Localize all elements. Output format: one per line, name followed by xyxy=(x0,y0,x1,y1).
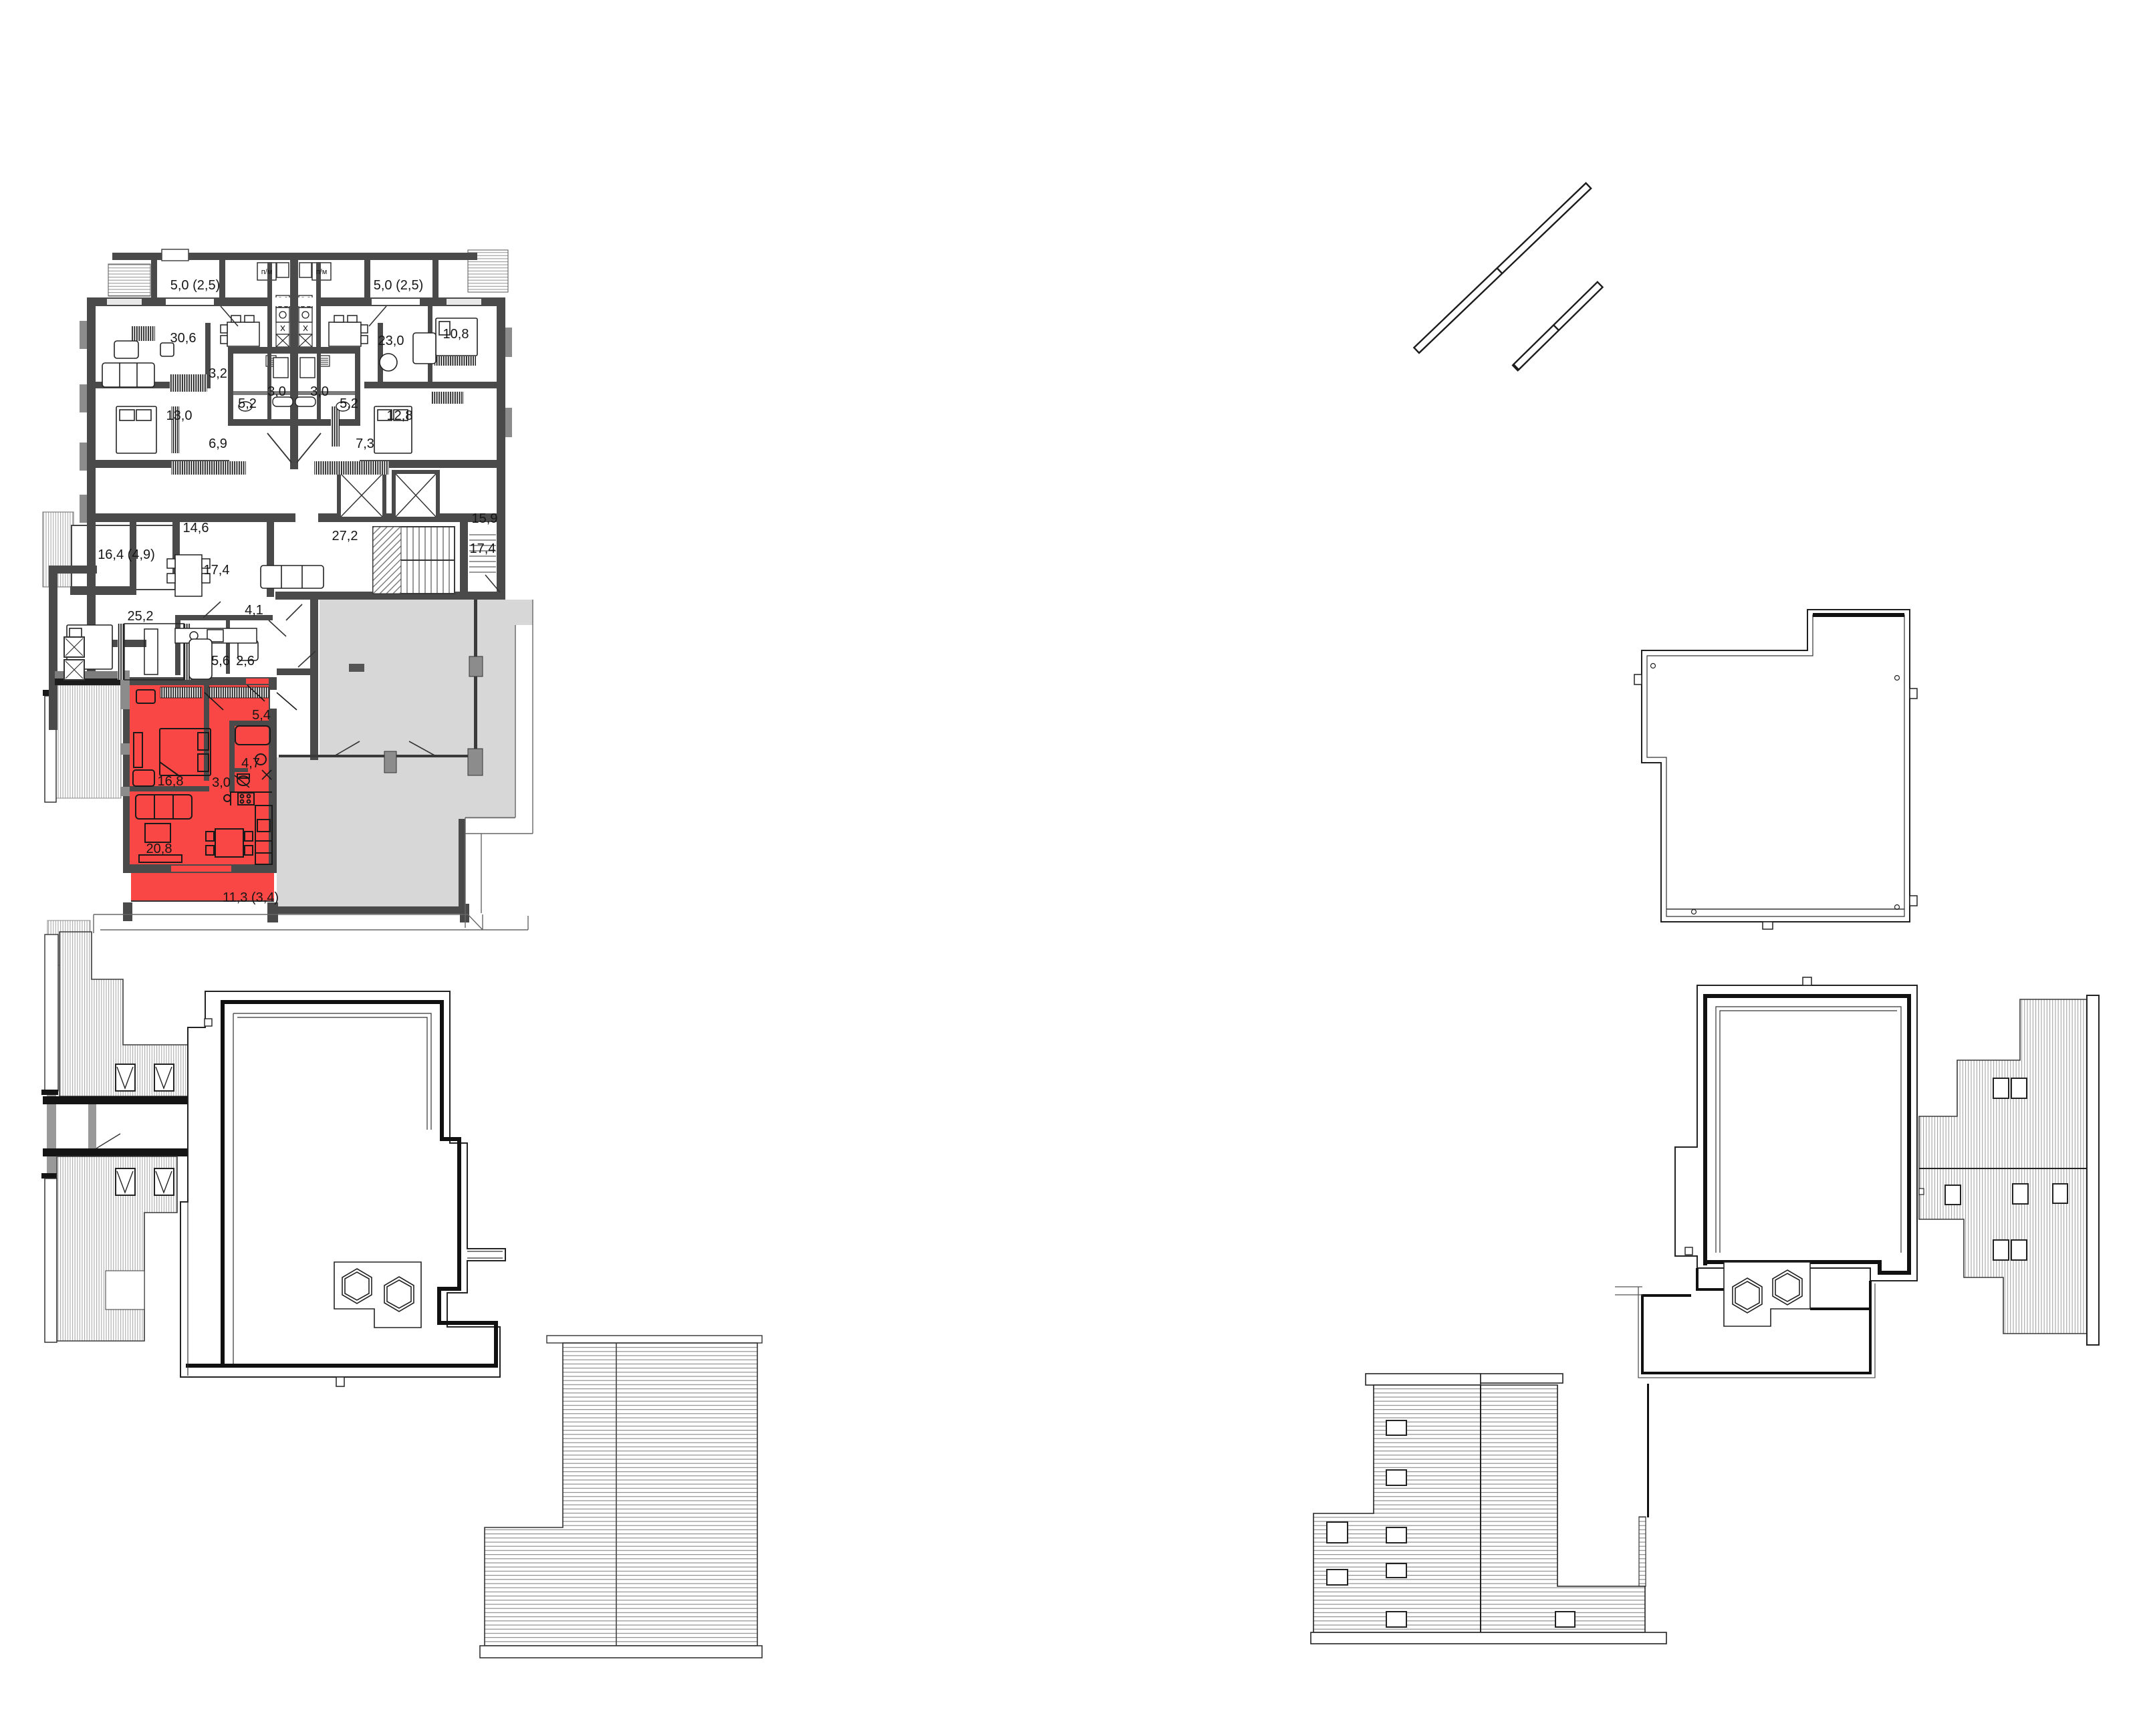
svg-text:11,3 (3,4): 11,3 (3,4) xyxy=(223,890,279,905)
svg-text:5,0 (2,5): 5,0 (2,5) xyxy=(170,278,220,293)
svg-text:4,1: 4,1 xyxy=(245,603,263,618)
svg-text:16,4 (4,9): 16,4 (4,9) xyxy=(98,547,155,562)
svg-text:5,4: 5,4 xyxy=(252,708,271,723)
svg-text:5,2: 5,2 xyxy=(340,396,358,411)
svg-text:12,8: 12,8 xyxy=(387,408,413,423)
svg-text:10,8: 10,8 xyxy=(443,327,469,342)
svg-text:7,3: 7,3 xyxy=(356,437,374,451)
svg-text:27,2: 27,2 xyxy=(332,529,358,543)
svg-text:23,0: 23,0 xyxy=(378,334,404,348)
svg-text:30,6: 30,6 xyxy=(170,331,197,346)
svg-text:3,2: 3,2 xyxy=(209,366,227,381)
svg-text:16,8: 16,8 xyxy=(158,774,184,789)
svg-text:2,6: 2,6 xyxy=(236,654,255,668)
svg-text:15,9: 15,9 xyxy=(472,511,498,526)
svg-text:3,0: 3,0 xyxy=(267,384,286,399)
svg-text:5,0 (2,5): 5,0 (2,5) xyxy=(374,278,423,293)
svg-text:17,4: 17,4 xyxy=(470,541,496,556)
svg-text:14,6: 14,6 xyxy=(183,521,209,535)
svg-text:20,8: 20,8 xyxy=(146,842,172,856)
svg-text:5,2: 5,2 xyxy=(238,396,257,411)
svg-text:3,0: 3,0 xyxy=(310,384,329,399)
svg-text:6,9: 6,9 xyxy=(209,437,227,451)
svg-text:3,0: 3,0 xyxy=(212,775,231,790)
svg-text:п/м: п/м xyxy=(261,268,273,276)
svg-text:25,2: 25,2 xyxy=(128,609,154,624)
svg-text:17,4: 17,4 xyxy=(204,563,230,578)
svg-text:13,0: 13,0 xyxy=(166,408,193,423)
svg-text:4,7: 4,7 xyxy=(241,756,260,771)
svg-text:п/м: п/м xyxy=(316,268,328,276)
svg-text:5,6: 5,6 xyxy=(211,654,230,668)
